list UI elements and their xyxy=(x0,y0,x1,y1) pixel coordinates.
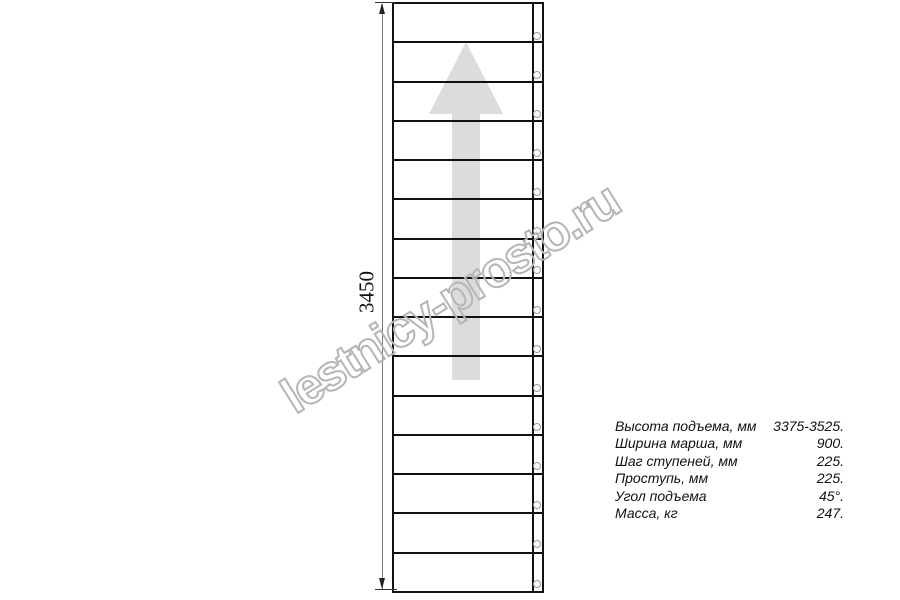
spec-label: Высота подъема, мм xyxy=(615,418,757,435)
fastener-circle xyxy=(533,345,541,353)
fastener-circle xyxy=(533,306,541,314)
tread-row xyxy=(394,279,542,318)
tread-row xyxy=(394,83,542,122)
spec-value: 900. xyxy=(817,435,844,452)
spec-value: 45°. xyxy=(819,488,844,505)
tread-row xyxy=(394,4,542,43)
tread-row xyxy=(394,240,542,279)
spec-label: Шаг ступеней, мм xyxy=(615,453,738,470)
tread-row xyxy=(394,475,542,514)
tread-row xyxy=(394,554,542,591)
tread-rows xyxy=(394,4,542,591)
tread-row xyxy=(394,200,542,239)
spec-value: 247. xyxy=(817,505,844,522)
spec-label: Ширина марша, мм xyxy=(615,435,742,452)
spec-row: Ширина марша, мм900. xyxy=(615,435,844,452)
fastener-circle xyxy=(533,71,541,79)
spec-label: Масса, кг xyxy=(615,505,678,522)
spec-value: 225. xyxy=(817,453,844,470)
tread-row xyxy=(394,514,542,553)
fastener-circle xyxy=(533,32,541,40)
spec-label: Угол подъема xyxy=(615,488,707,505)
spec-row: Шаг ступеней, мм225. xyxy=(615,453,844,470)
dimension-line xyxy=(382,4,383,589)
spec-row: Высота подъема, мм3375-3525. xyxy=(615,418,844,435)
stair-drawing-canvas: 3450 Высота подъема, мм3375-3525.Ширина … xyxy=(0,0,900,600)
spec-label: Проступь, мм xyxy=(615,470,708,487)
fastener-circle xyxy=(533,110,541,118)
tread-row xyxy=(394,122,542,161)
spec-row: Угол подъема45°. xyxy=(615,488,844,505)
fastener-circle xyxy=(533,149,541,157)
dimension-arrowhead-down-icon xyxy=(379,578,385,589)
fastener-circle xyxy=(533,384,541,392)
staircase-plan xyxy=(392,2,544,593)
tread-row xyxy=(394,161,542,200)
fastener-circle xyxy=(533,423,541,431)
spec-value: 225. xyxy=(817,470,844,487)
tread-row xyxy=(394,397,542,436)
fastener-circle xyxy=(533,580,541,588)
spec-value: 3375-3525. xyxy=(773,418,844,435)
dimension-label: 3450 xyxy=(355,271,380,313)
spec-row: Масса, кг247. xyxy=(615,505,844,522)
tread-row xyxy=(394,436,542,475)
tread-row xyxy=(394,318,542,357)
specs-table: Высота подъема, мм3375-3525.Ширина марша… xyxy=(615,418,844,522)
dimension-arrowhead-up-icon xyxy=(379,3,385,14)
spec-row: Проступь, мм225. xyxy=(615,470,844,487)
dimension-tick-bottom xyxy=(375,589,397,590)
tread-row xyxy=(394,357,542,396)
tread-row xyxy=(394,43,542,82)
